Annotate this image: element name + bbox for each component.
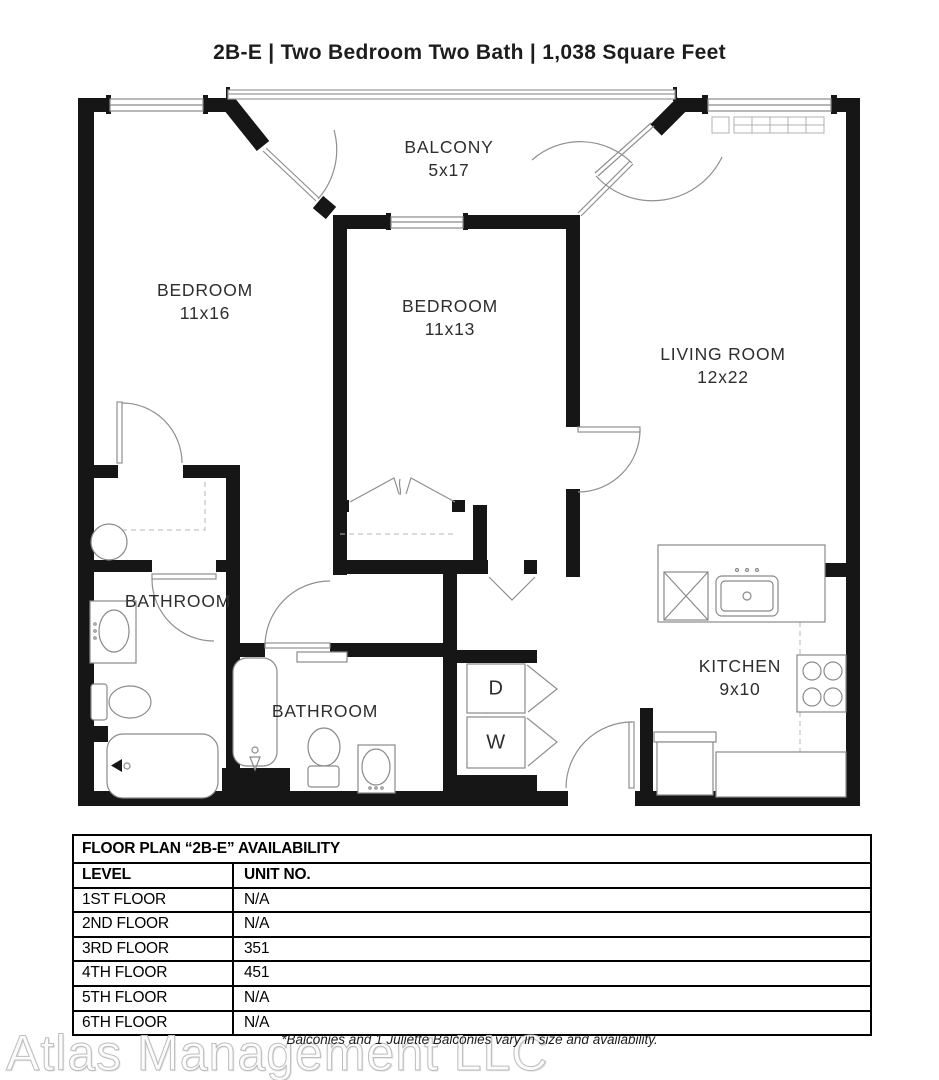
fridge	[657, 742, 713, 795]
bedroom1-label: BEDROOM11x16	[157, 279, 253, 325]
footnote: *Balconies and 1 Juliette Balconies vary…	[0, 1032, 939, 1047]
bath2-sink	[362, 749, 390, 785]
kitchen-counter-bottom	[716, 752, 846, 797]
kitchen-label: KITCHEN9x10	[699, 655, 781, 701]
table-row: 5TH FLOOR N/A	[74, 987, 870, 1012]
bedroom2-label: BEDROOM11x13	[402, 295, 498, 341]
table-header: LEVEL UNIT NO.	[74, 864, 870, 889]
balcony-railing	[228, 90, 675, 99]
table-title: FLOOR PLAN “2B-E” AVAILABILITY	[74, 836, 870, 864]
fridge-lid	[654, 732, 716, 742]
table-row: 3RD FLOOR 351	[74, 938, 870, 963]
living-room-label: LIVING ROOM12x22	[660, 343, 785, 389]
water-heater	[91, 524, 127, 560]
dryer-label: D	[489, 678, 504, 701]
floor-plan-page: 2B-E | Two Bedroom Two Bath | 1,038 Squa…	[0, 0, 939, 1080]
bath1-sink	[99, 610, 129, 652]
table-row: 1ST FLOOR N/A	[74, 889, 870, 914]
bath2-toilet-tank	[308, 766, 339, 787]
washer-label: W	[486, 732, 505, 755]
bath1-toilet-tank	[91, 684, 107, 720]
availability-table: FLOOR PLAN “2B-E” AVAILABILITY LEVEL UNI…	[72, 834, 872, 1036]
bath2-shelf	[297, 652, 347, 662]
col-unit: UNIT NO.	[234, 864, 870, 887]
bath1-toilet-bowl	[109, 686, 151, 718]
col-level: LEVEL	[74, 864, 234, 887]
table-row: 4TH FLOOR 451	[74, 962, 870, 987]
bath2-toilet-bowl	[308, 728, 340, 766]
table-row: 2ND FLOOR N/A	[74, 913, 870, 938]
bathroom1-label: BATHROOM	[125, 590, 231, 613]
balcony-label: BALCONY5x17	[404, 136, 493, 182]
baseboard-heater	[712, 117, 824, 133]
bathroom2-label: BATHROOM	[272, 700, 378, 723]
